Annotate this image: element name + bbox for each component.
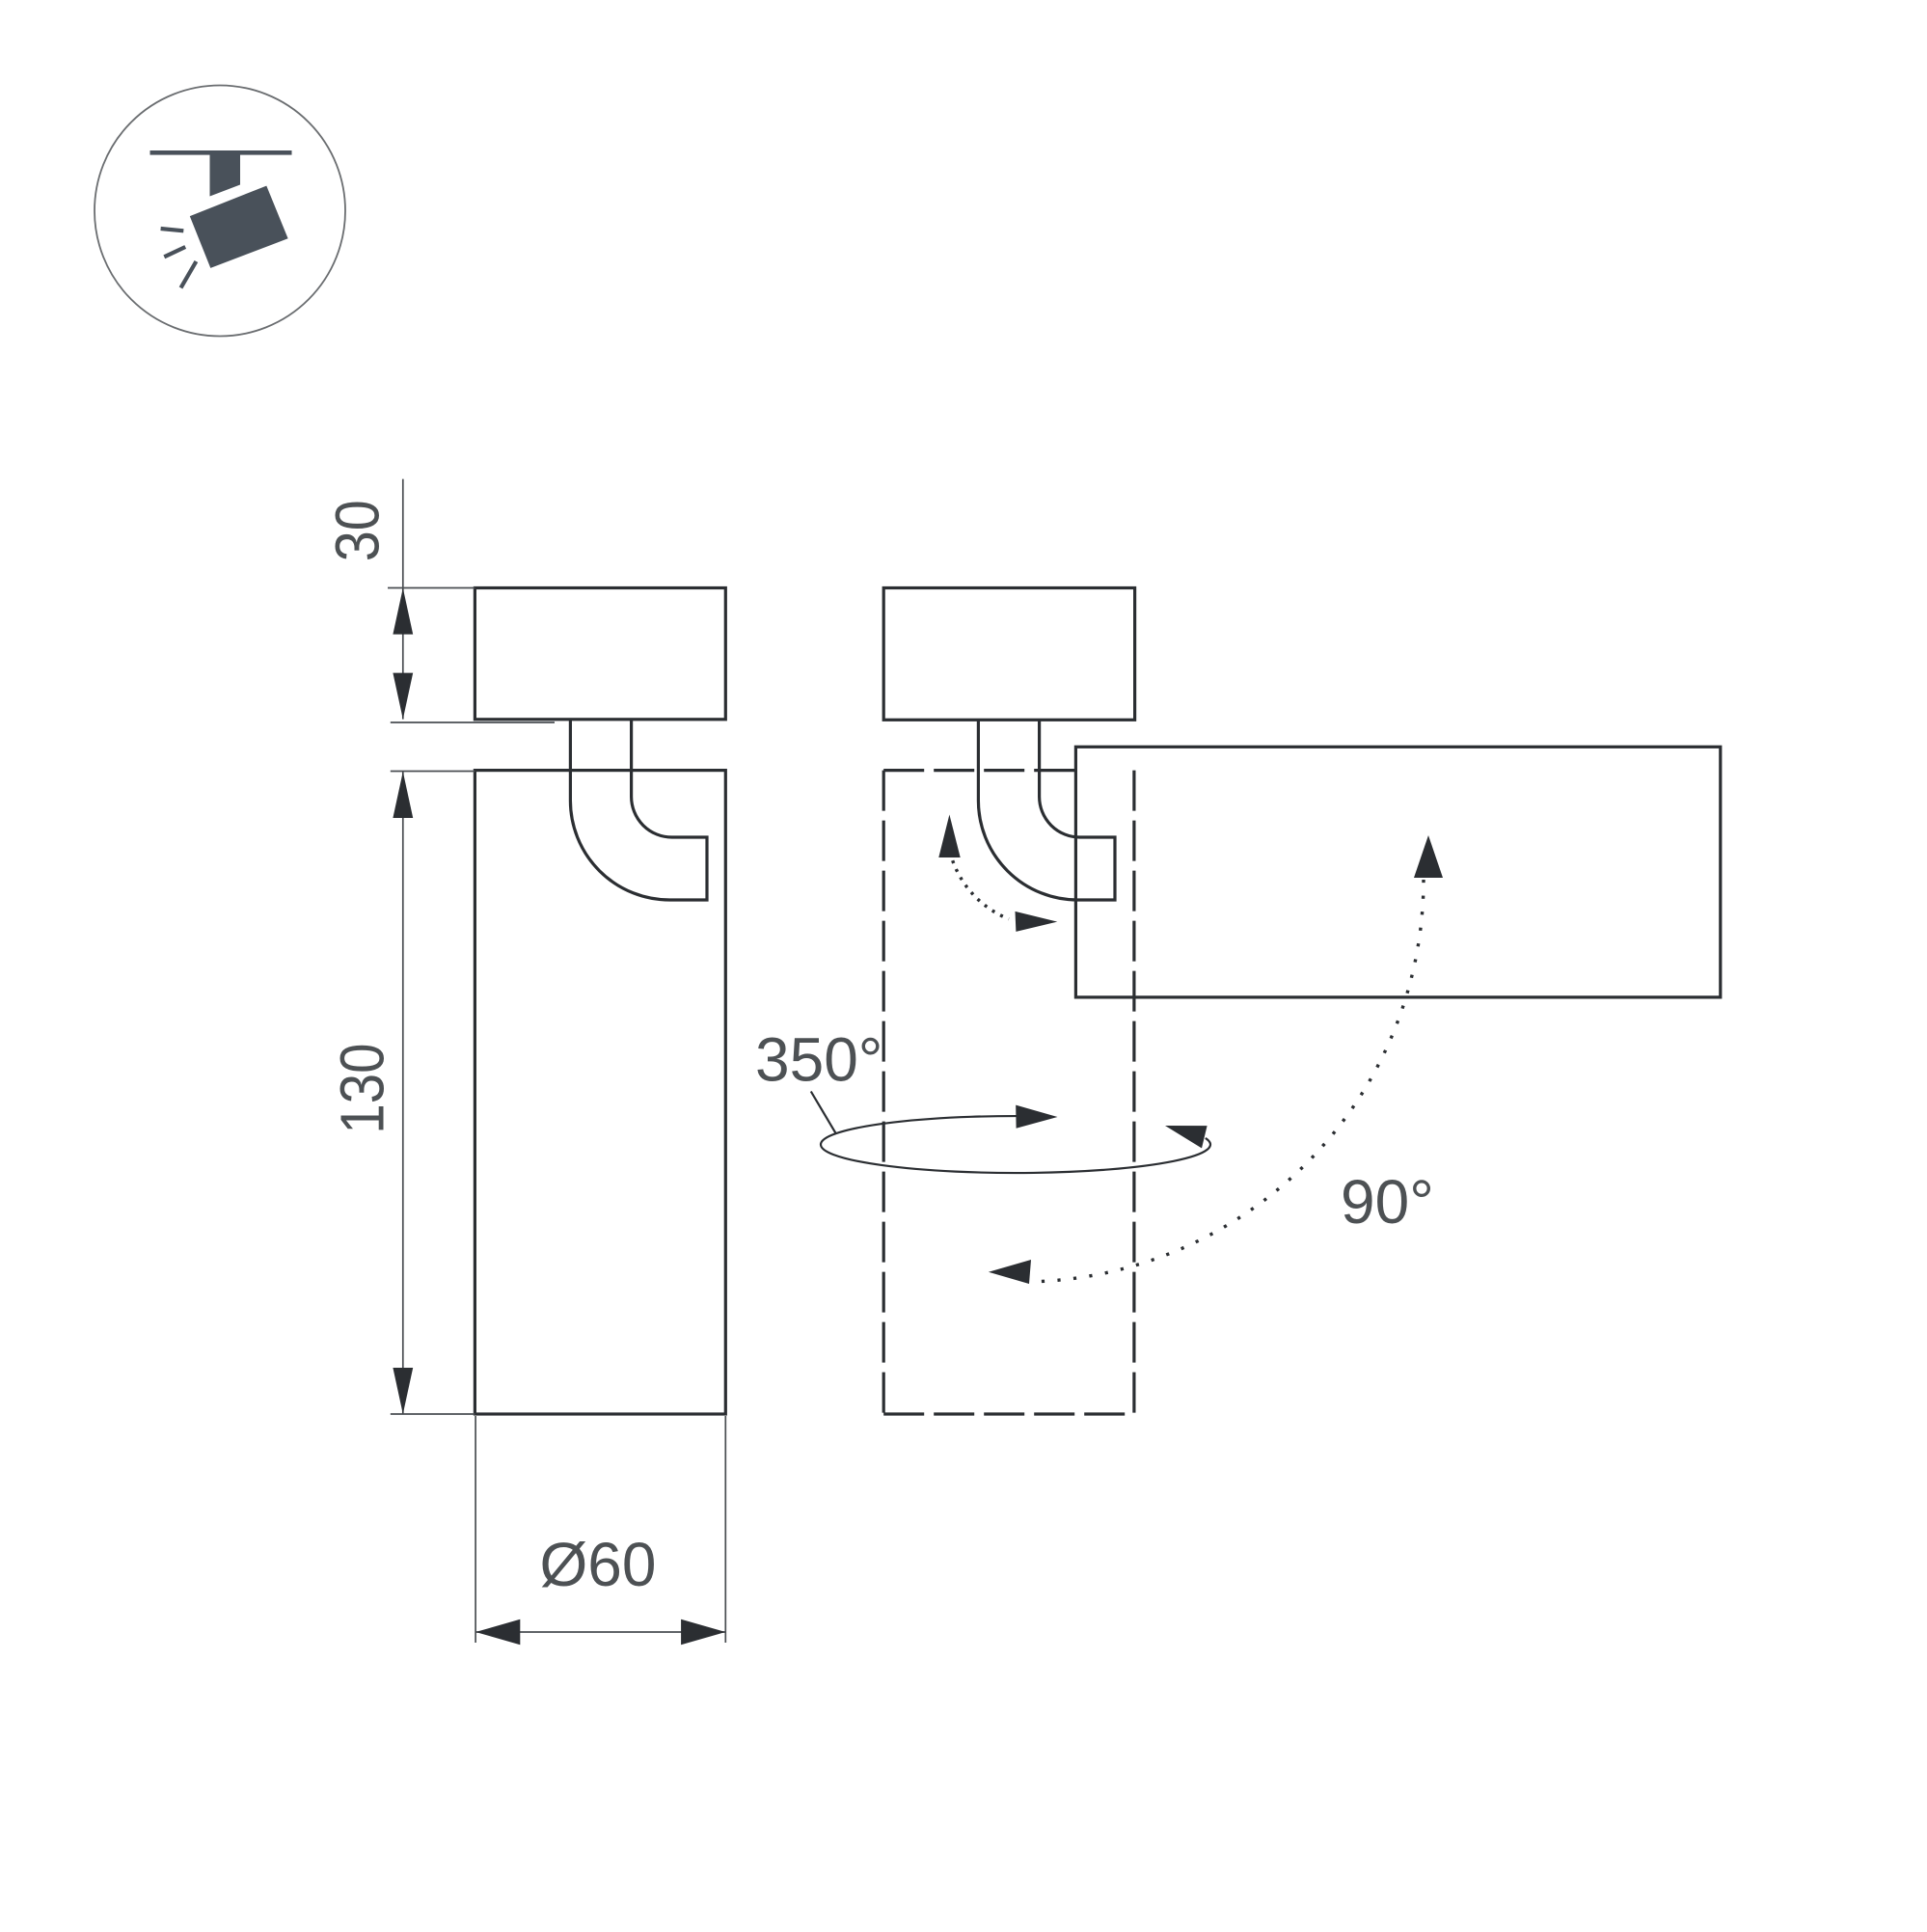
svg-text:350°: 350° xyxy=(755,1025,882,1095)
svg-text:90°: 90° xyxy=(1341,1167,1434,1237)
svg-text:130: 130 xyxy=(328,1044,397,1134)
svg-text:Ø60: Ø60 xyxy=(540,1530,657,1599)
svg-text:30: 30 xyxy=(323,500,393,561)
